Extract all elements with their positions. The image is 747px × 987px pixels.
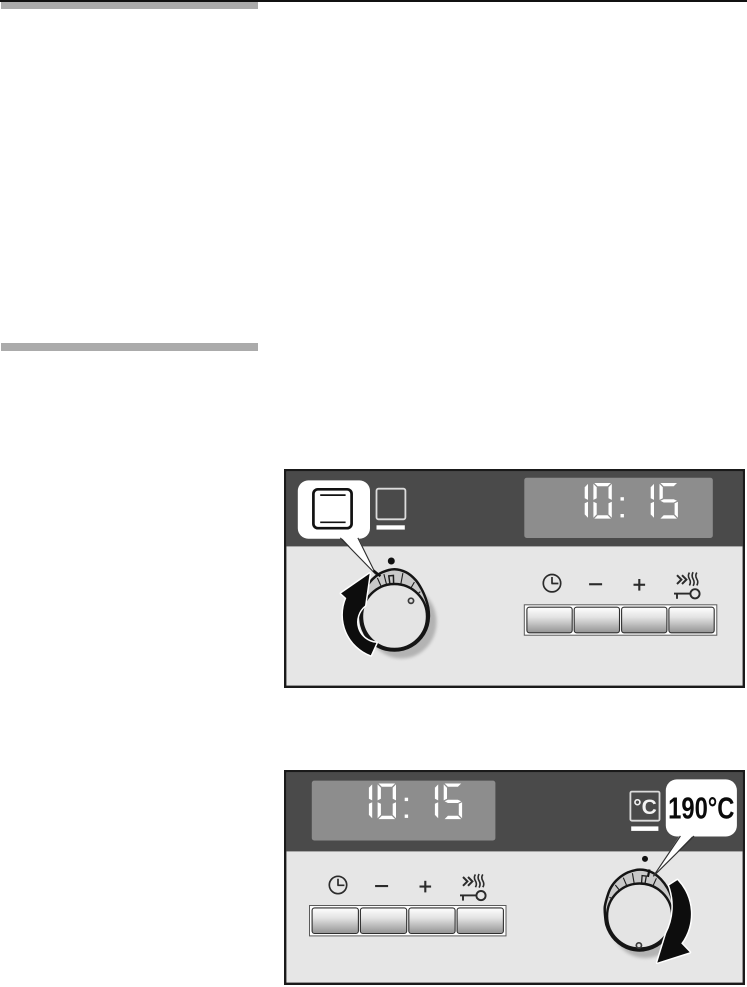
svg-text:°C: °C bbox=[633, 796, 657, 819]
svg-text:190°C: 190°C bbox=[668, 791, 734, 826]
